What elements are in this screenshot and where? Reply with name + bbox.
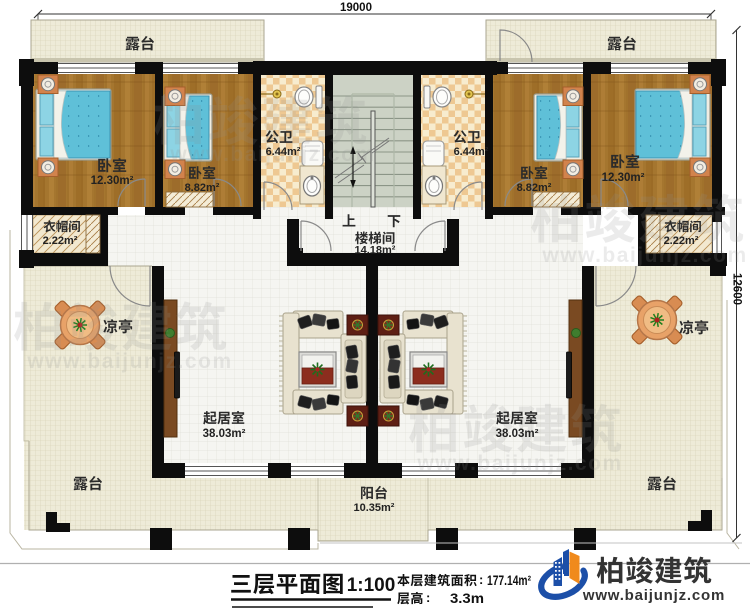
svg-text:12600: 12600 (731, 273, 743, 305)
svg-text:6.44m²: 6.44m² (454, 146, 489, 158)
svg-text:www.baijunjz.com: www.baijunjz.com (582, 587, 725, 604)
svg-text:2.22m²: 2.22m² (664, 235, 699, 247)
svg-text:www.baijunjz.com: www.baijunjz.com (541, 244, 747, 267)
svg-text:19000: 19000 (340, 2, 372, 14)
svg-text::: : (479, 572, 483, 587)
svg-text:www.baijunjz.com: www.baijunjz.com (26, 350, 232, 373)
svg-text:12.30m²: 12.30m² (91, 175, 134, 187)
svg-text:3.3m: 3.3m (450, 591, 484, 606)
svg-text:www.baijunjz.com: www.baijunjz.com (416, 452, 622, 475)
svg-text::: : (426, 590, 430, 605)
svg-text:38.03m²: 38.03m² (496, 428, 539, 440)
svg-text:14.18m²: 14.18m² (355, 245, 396, 257)
svg-text:1:100: 1:100 (347, 575, 396, 596)
svg-text:2.22m²: 2.22m² (43, 235, 78, 247)
svg-text:6.44m²: 6.44m² (266, 146, 301, 158)
svg-text:8.82m²: 8.82m² (185, 182, 220, 194)
svg-text:38.03m²: 38.03m² (203, 428, 246, 440)
svg-text:177.14m²: 177.14m² (487, 573, 531, 588)
svg-text:8.82m²: 8.82m² (517, 182, 552, 194)
svg-text:12.30m²: 12.30m² (602, 172, 645, 184)
svg-text:10.35m²: 10.35m² (354, 502, 395, 514)
